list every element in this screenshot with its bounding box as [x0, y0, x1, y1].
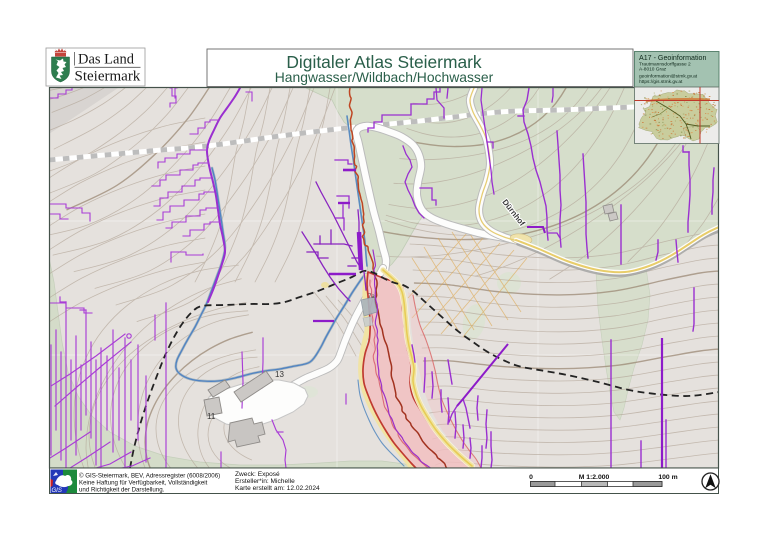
svg-text:A-8010 Graz: A-8010 Graz: [639, 67, 667, 73]
svg-text:© GIS-Steiermark, BEV, Adressr: © GIS-Steiermark, BEV, Adressregister (6…: [79, 472, 220, 479]
svg-text:M 1:2.000: M 1:2.000: [579, 474, 610, 481]
svg-text:Das Land: Das Land: [78, 52, 135, 68]
svg-text:Karte erstellt am: 12.02.2024: Karte erstellt am: 12.02.2024: [235, 485, 320, 492]
svg-text:https://gis.stmk.gv.at: https://gis.stmk.gv.at: [639, 79, 683, 85]
svg-text:0: 0: [529, 474, 533, 481]
svg-text:7a: 7a: [368, 294, 375, 300]
svg-text:GIS: GIS: [52, 488, 62, 494]
svg-text:A17 - Geoinformation: A17 - Geoinformation: [639, 54, 706, 62]
svg-text:geoinformation@stmk.gv.at: geoinformation@stmk.gv.at: [639, 74, 698, 80]
svg-text:Hangwasser/Wildbach/Hochwasser: Hangwasser/Wildbach/Hochwasser: [275, 69, 494, 85]
svg-text:100 m: 100 m: [658, 474, 677, 481]
svg-text:und Richtigkeit der Darstellun: und Richtigkeit der Darstellung.: [79, 486, 165, 493]
svg-text:Ersteller*in: Michelle: Ersteller*in: Michelle: [235, 478, 295, 485]
svg-text:Zweck: Exposé: Zweck: Exposé: [235, 471, 280, 478]
svg-text:13: 13: [275, 370, 284, 379]
svg-text:Steiermark: Steiermark: [75, 69, 141, 85]
svg-text:Keine Haftung für Verfügbarkei: Keine Haftung für Verfügbarkeit, Vollstä…: [79, 479, 208, 486]
svg-text:11: 11: [207, 412, 216, 421]
